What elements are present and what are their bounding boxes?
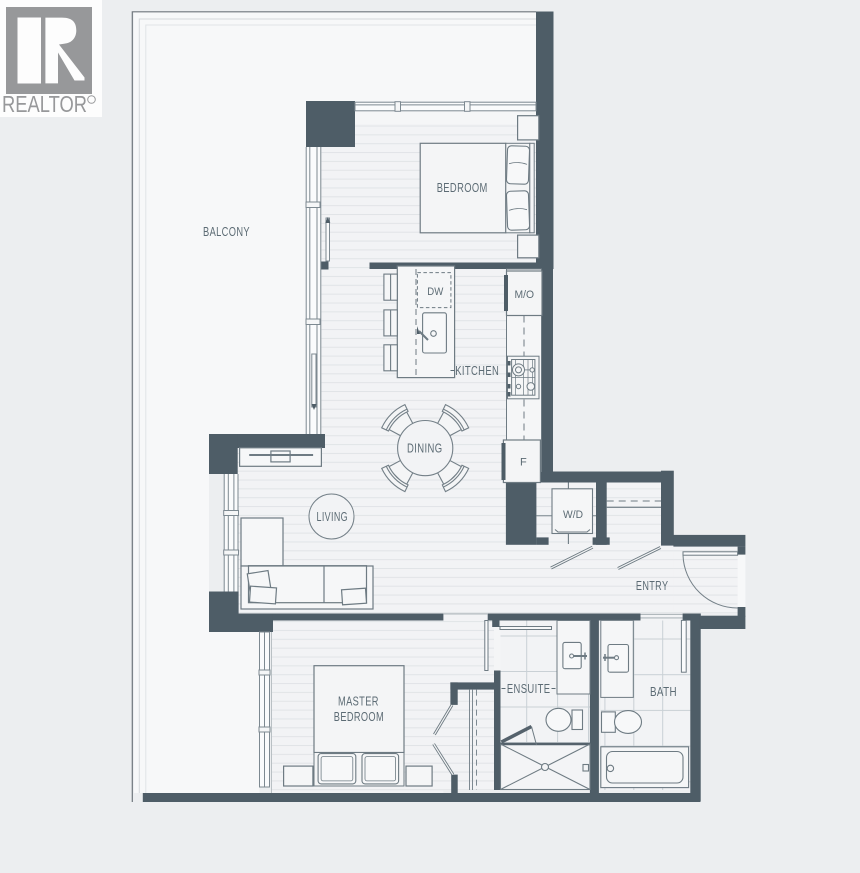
svg-text:BEDROOM: BEDROOM	[437, 181, 488, 195]
svg-text:KITCHEN: KITCHEN	[455, 364, 499, 378]
svg-text:MASTER: MASTER	[338, 694, 379, 708]
svg-text:M/O: M/O	[515, 289, 535, 301]
svg-text:DW: DW	[427, 286, 444, 298]
svg-text:BALCONY: BALCONY	[203, 225, 250, 239]
svg-text:W/D: W/D	[563, 509, 583, 521]
svg-text:DINING: DINING	[407, 442, 443, 456]
svg-text:F: F	[520, 457, 527, 469]
svg-text:ENTRY: ENTRY	[636, 579, 669, 593]
svg-text:REALTOR: REALTOR	[2, 91, 87, 117]
svg-text:ENSUITE: ENSUITE	[507, 682, 551, 696]
svg-text:BEDROOM: BEDROOM	[334, 710, 384, 724]
svg-text:LIVING: LIVING	[317, 510, 349, 524]
svg-text:BATH: BATH	[650, 685, 677, 699]
